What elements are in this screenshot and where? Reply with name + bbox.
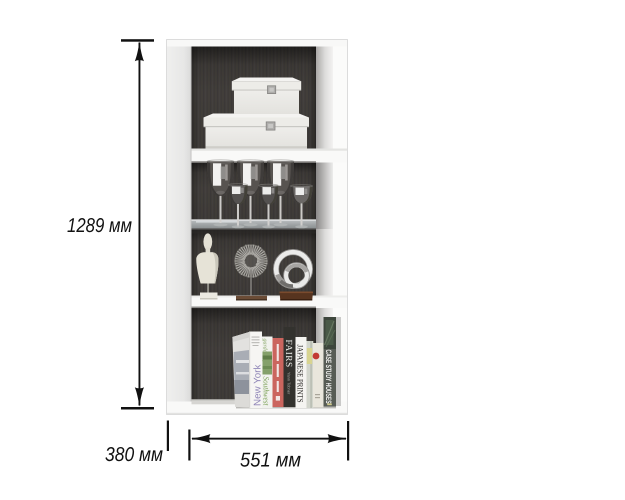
svg-text:JAPANESE PRINTS: JAPANESE PRINTS [295, 345, 304, 403]
svg-text:551 мм: 551 мм [240, 450, 301, 472]
svg-text:380 мм: 380 мм [105, 444, 163, 466]
svg-text:Southwest: Southwest [261, 377, 270, 407]
svg-text:FAIRS: FAIRS [283, 340, 293, 368]
svg-text:1289 мм: 1289 мм [67, 215, 132, 237]
svg-text:CASE STUDY HOUSES: CASE STUDY HOUSES [324, 350, 333, 404]
svg-text:Yann Tobner: Yann Tobner [287, 372, 292, 395]
